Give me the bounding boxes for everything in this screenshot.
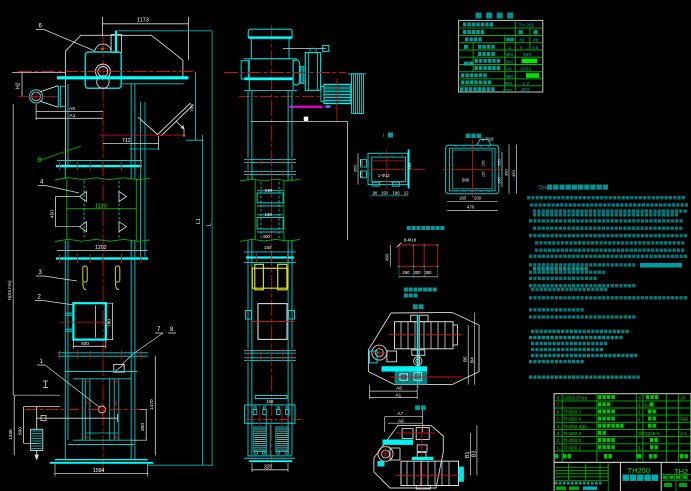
svg-text:MM: MM	[506, 59, 514, 64]
svg-text:350: 350	[425, 270, 433, 275]
svg-text:1: 1	[638, 403, 641, 409]
svg-text:5: 5	[557, 417, 560, 423]
svg-text:TH250.7: TH250.7	[564, 410, 582, 415]
svg-text:712: 712	[122, 138, 131, 144]
svg-text:B5: B5	[463, 356, 468, 362]
svg-text:Q235-A: Q235-A	[645, 431, 660, 436]
svg-text:M/S: M/S	[505, 81, 513, 86]
svg-text:1: 1	[638, 445, 641, 451]
svg-text:300: 300	[414, 270, 422, 275]
svg-text:1335: 1335	[8, 429, 14, 440]
svg-text:280: 280	[407, 162, 412, 169]
svg-text:30: 30	[519, 38, 525, 44]
svg-text:r/min: r/min	[503, 87, 512, 92]
svg-text:260: 260	[403, 270, 411, 275]
svg-text:90: 90	[373, 190, 378, 195]
svg-text:150: 150	[496, 159, 501, 166]
svg-text:780: 780	[106, 319, 112, 327]
svg-text:6: 6	[557, 410, 560, 416]
svg-text:TH250: TH250	[628, 466, 651, 475]
svg-text:1470: 1470	[149, 399, 155, 410]
svg-text:350: 350	[503, 169, 508, 176]
svg-text:1120: 1120	[95, 203, 107, 209]
svg-text:450: 450	[385, 253, 390, 261]
svg-text:MM: MM	[506, 52, 514, 57]
svg-text:150: 150	[264, 245, 272, 250]
svg-text:155: 155	[360, 172, 364, 178]
svg-text:A6: A6	[398, 418, 404, 423]
svg-text:150: 150	[381, 190, 389, 195]
svg-text:TH250.6: TH250.6	[564, 417, 582, 422]
svg-text:600: 600	[462, 178, 470, 183]
svg-text:B4: B4	[470, 357, 475, 363]
svg-text:190: 190	[393, 190, 401, 195]
svg-text:150: 150	[482, 171, 486, 177]
svg-text:TH250.2: TH250.2	[564, 438, 582, 443]
svg-text:1: 1	[638, 410, 641, 416]
svg-text:1-Φ18: 1-Φ18	[482, 136, 494, 141]
svg-text:2: 2	[557, 438, 560, 444]
svg-text:B: B	[38, 158, 42, 164]
svg-text:H(XX mm): H(XX mm)	[7, 280, 12, 300]
svg-text:TH250.4(5): TH250.4(5)	[564, 424, 588, 429]
svg-text:150: 150	[482, 160, 486, 166]
svg-text:L1: L1	[196, 218, 202, 224]
svg-text:3: 3	[520, 45, 523, 51]
svg-text:22: 22	[404, 190, 409, 195]
svg-text:2.4: 2.4	[681, 431, 688, 436]
svg-text:TH 250: TH 250	[519, 23, 535, 29]
svg-text:1173: 1173	[137, 18, 149, 24]
svg-text:470: 470	[467, 205, 475, 210]
svg-text:98: 98	[638, 431, 644, 437]
svg-text:400: 400	[263, 234, 271, 239]
svg-text:180: 180	[265, 212, 273, 217]
svg-text:3: 3	[557, 431, 560, 437]
svg-text:≥320: ≥320	[521, 67, 532, 73]
svg-text:7: 7	[557, 403, 560, 409]
svg-text:MM: MM	[506, 74, 514, 79]
svg-text:A9: A9	[69, 106, 75, 112]
svg-text:TH250.3: TH250.3	[564, 431, 582, 436]
svg-text:48: 48	[533, 38, 539, 44]
svg-text:B1: B1	[465, 452, 471, 458]
svg-text:838: 838	[681, 417, 689, 422]
svg-text:8-Φ18: 8-Φ18	[404, 237, 417, 242]
svg-text:450: 450	[49, 210, 55, 218]
svg-text:9.06: 9.06	[645, 403, 654, 408]
svg-text:1.2: 1.2	[523, 81, 530, 87]
svg-text:450: 450	[511, 170, 516, 177]
svg-text:GB5027-86: GB5027-86	[564, 395, 588, 400]
svg-text:1584: 1584	[93, 468, 105, 474]
svg-text:1: 1	[557, 445, 560, 451]
svg-text:A1: A1	[70, 113, 76, 119]
svg-text:H2: H2	[16, 82, 22, 89]
svg-text:150: 150	[496, 177, 501, 184]
svg-text:4: 4	[638, 395, 641, 401]
svg-text:150: 150	[266, 399, 274, 404]
svg-text:L: L	[207, 223, 213, 226]
svg-text:155: 155	[360, 160, 364, 166]
svg-text:350: 350	[140, 423, 146, 431]
svg-text:8: 8	[557, 395, 560, 401]
svg-text:TH: TH	[538, 185, 547, 192]
svg-text:1: 1	[638, 417, 641, 423]
svg-text:TH250.1: TH250.1	[564, 445, 582, 450]
svg-text:48.5: 48.5	[521, 87, 531, 93]
svg-text:B2: B2	[472, 451, 478, 457]
svg-text:1202: 1202	[95, 245, 107, 251]
svg-text:500: 500	[18, 427, 24, 435]
svg-text:290: 290	[265, 188, 273, 193]
svg-text:200: 200	[474, 196, 482, 201]
svg-text:20: 20	[681, 395, 686, 400]
svg-text:KN: KN	[506, 67, 512, 72]
svg-text:709: 709	[189, 104, 195, 112]
svg-text:350: 350	[352, 165, 357, 172]
svg-text:1-Φ12: 1-Φ12	[378, 173, 390, 178]
svg-text:150: 150	[459, 196, 467, 201]
svg-text:A7: A7	[398, 411, 404, 416]
svg-text:450: 450	[523, 52, 531, 58]
svg-text:1: 1	[509, 45, 512, 51]
svg-text:A8: A8	[396, 386, 402, 391]
svg-text:A1: A1	[396, 393, 402, 398]
svg-text:4.5: 4.5	[532, 45, 539, 51]
svg-text:4: 4	[557, 424, 560, 430]
